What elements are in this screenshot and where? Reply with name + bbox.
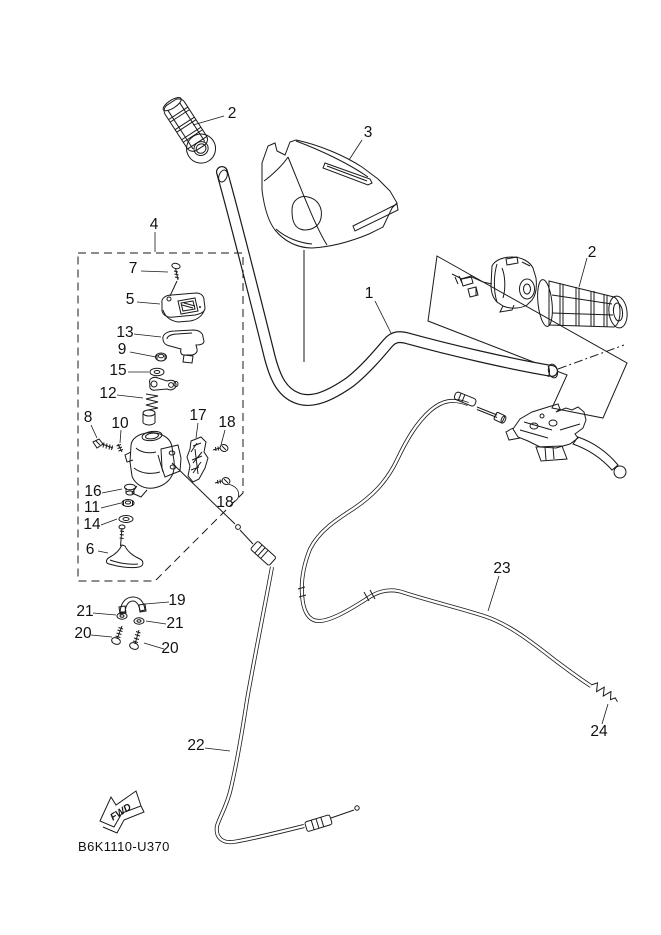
part-24-spring [590,681,620,705]
callout-18-lower: 18 [216,494,233,511]
callout-22: 22 [187,737,204,754]
part-14-washer [119,516,133,523]
part-12-spring [146,394,158,410]
callout-8: 8 [84,409,93,426]
callout-24: 24 [590,723,608,740]
part-2-grip-right [536,279,629,329]
callout-11: 11 [84,499,100,516]
callout-3: 3 [364,124,373,141]
callout-6: 6 [86,541,95,558]
callout-5: 5 [126,291,135,308]
callout-7: 7 [129,260,138,277]
cable-adjuster [454,391,507,424]
part-16-bushing [125,484,136,495]
callout-19: 19 [168,592,185,609]
part-19-clamp [119,597,146,614]
part-20-screw-right [129,630,141,651]
brake-lever-assembly [454,391,626,478]
part-9-nut [156,353,167,361]
callout-16: 16 [84,483,101,500]
callout-15: 15 [109,362,126,379]
part-code: B6K1110-U370 [78,839,170,854]
part-10-pin [117,444,124,452]
part-1-handlebar [217,169,559,400]
callout-10: 10 [111,415,129,432]
callout-9: 9 [118,341,127,358]
part-3-handlebar-cover [262,140,398,248]
cable-22-end-fitting [305,806,360,832]
callout-2-right: 2 [588,244,597,261]
part-8-bolt [93,439,113,450]
part-17-bracket [187,437,208,482]
cable-nipple [494,412,507,424]
cam-lever-piece [150,377,178,390]
callout-17: 17 [189,407,206,424]
callouts: 1 2 2 3 4 5 6 7 8 9 10 11 12 13 14 15 16… [74,105,608,754]
part-20-screw-left [111,626,123,646]
callout-21-left: 21 [76,603,93,620]
fwd-arrow: FWD [100,791,144,833]
callout-1: 1 [365,285,374,302]
handlebar-centerline [558,345,624,369]
part-21-washer-right [134,618,144,624]
callout-2-left: 2 [228,105,237,122]
part-7-screw [170,263,181,296]
parts-diagram-canvas: FWD 1 2 2 3 4 5 [0,0,661,935]
callout-23: 23 [493,560,510,577]
callout-18-upper: 18 [218,414,235,431]
projection-outline [428,256,627,418]
callout-4: 4 [150,216,159,233]
callout-14: 14 [83,516,101,533]
part-11-nut [122,500,134,507]
cable-22 [172,463,359,842]
switch-housing-sketch [491,257,536,312]
callout-20-right: 20 [161,640,179,657]
handlebar-parts-diagram: FWD 1 2 2 3 4 5 [0,0,661,935]
callout-21-right: 21 [166,615,183,632]
part-13-gasket [163,330,204,363]
cable-23 [298,401,591,686]
fwd-label: FWD [109,802,134,824]
part-5-cap [162,293,205,322]
wiring-sketch [452,274,492,297]
callout-20-left: 20 [74,625,92,642]
part-2-grip-left [158,93,221,169]
callout-13: 13 [116,324,133,341]
callout-12: 12 [99,385,116,402]
part-15-washer [150,368,164,376]
part-6-lever [106,525,142,568]
piston [143,410,155,425]
